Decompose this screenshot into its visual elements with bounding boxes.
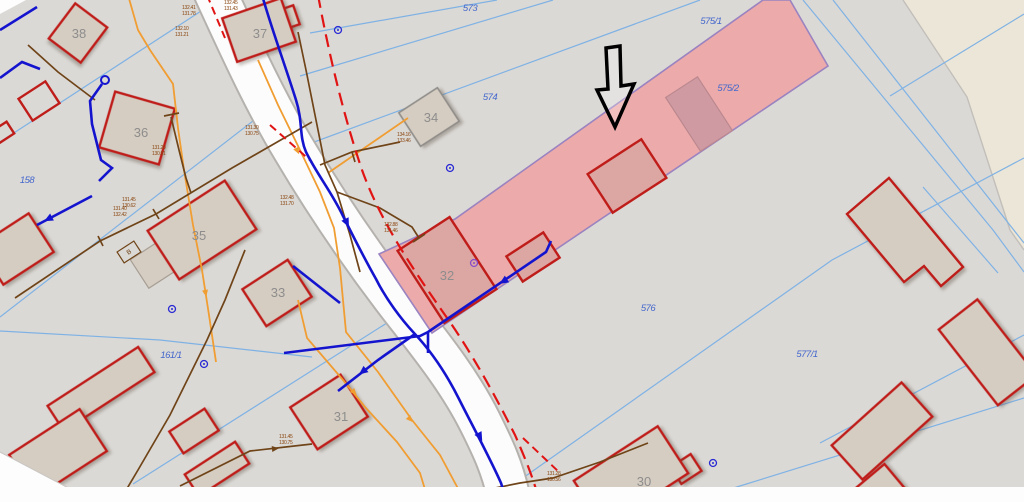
- utility-label: 130.91: [152, 151, 166, 157]
- utility-label: 130.75: [279, 440, 293, 446]
- utility-label: 130.56: [547, 477, 561, 483]
- utility-label: 131.70: [280, 201, 294, 207]
- building-label-33: 33: [271, 285, 285, 300]
- building-label-31: 31: [334, 409, 348, 424]
- building-label-32: 32: [440, 268, 454, 283]
- building-label-37: 37: [253, 26, 267, 41]
- map-canvas[interactable]: B 573 574 575/1 575/2 576 577/1 158 161/…: [0, 0, 1024, 502]
- parcel-label-161-1: 161/1: [160, 350, 181, 361]
- parcel-label-573: 573: [463, 3, 479, 14]
- utility-label: 131.78: [182, 11, 196, 17]
- building-label-36: 36: [134, 125, 148, 140]
- building-label-30: 30: [637, 474, 651, 489]
- building-label-35: 35: [192, 228, 206, 243]
- utility-label: 131.43: [224, 6, 238, 12]
- utility-label: 130.75: [245, 131, 259, 137]
- parcel-label-576: 576: [641, 303, 657, 314]
- parcel-label-575-1: 575/1: [700, 16, 721, 27]
- utility-label: 133.46: [397, 138, 411, 144]
- utility-label: 130.62: [122, 203, 136, 209]
- utility-label: 132.42: [113, 212, 127, 218]
- parcel-label-158: 158: [20, 175, 36, 186]
- utility-label: 131.21: [175, 32, 189, 38]
- bottom-margin-strip: [0, 487, 1024, 502]
- building-label-34: 34: [424, 110, 438, 125]
- parcel-label-575-2: 575/2: [717, 83, 739, 94]
- parcel-label-574: 574: [483, 92, 498, 103]
- cadastral-map: B 573 574 575/1 575/2 576 577/1 158 161/…: [0, 0, 1024, 502]
- parcel-label-577-1: 577/1: [796, 349, 817, 360]
- building-label-38: 38: [72, 26, 86, 41]
- utility-label: 131.46: [384, 228, 398, 234]
